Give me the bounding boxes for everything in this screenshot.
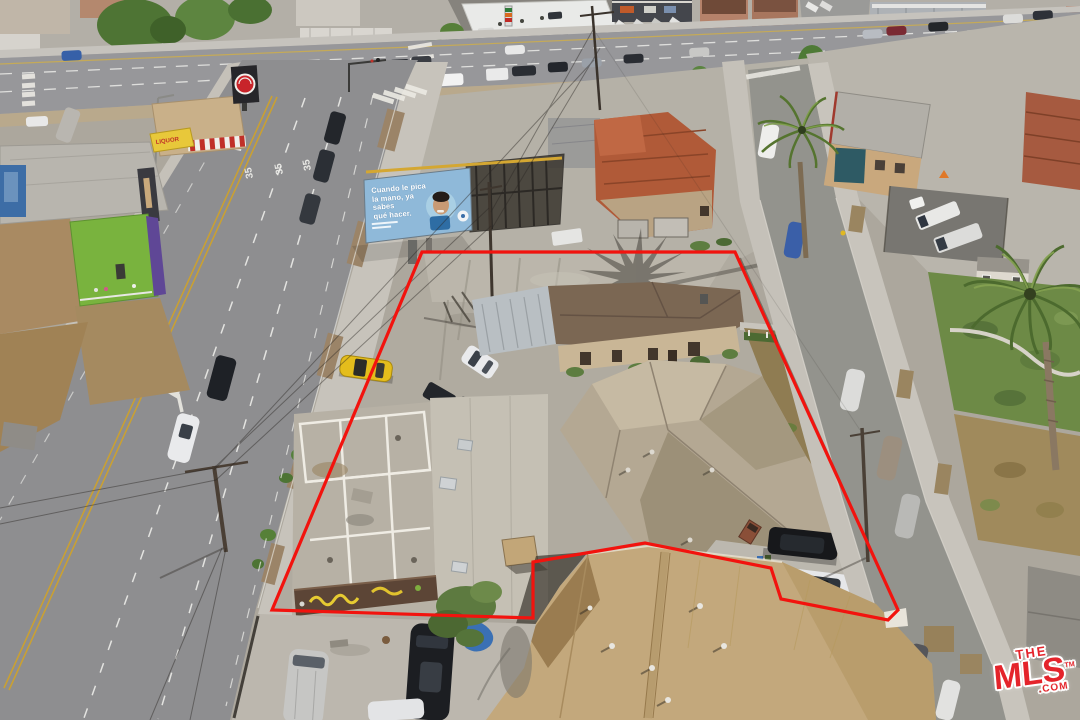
silver-minivan	[282, 648, 330, 720]
billboard-catwalk	[466, 154, 564, 232]
garage-door	[654, 218, 688, 237]
far-right-tile-house	[1022, 92, 1080, 190]
ac-unit	[439, 477, 456, 490]
mls-watermark-mls: MLSTM	[988, 653, 1080, 694]
parkway-square	[924, 626, 954, 652]
liquor-store: LIQUOR	[150, 96, 246, 156]
mls-watermark-tm: TM	[1064, 661, 1075, 669]
billboard-building	[0, 142, 168, 224]
fire-hydrant	[841, 231, 846, 236]
green-store	[70, 214, 166, 306]
billboard-headline: Cuando le pica la mano, ya sabes qué hac…	[371, 181, 438, 221]
aerial-photo: 35 35 35	[0, 0, 1080, 720]
aerial-scene: 35 35 35	[0, 0, 1080, 720]
truck-yard	[884, 186, 1008, 264]
garage-door	[618, 220, 648, 238]
corner-building	[823, 91, 930, 200]
